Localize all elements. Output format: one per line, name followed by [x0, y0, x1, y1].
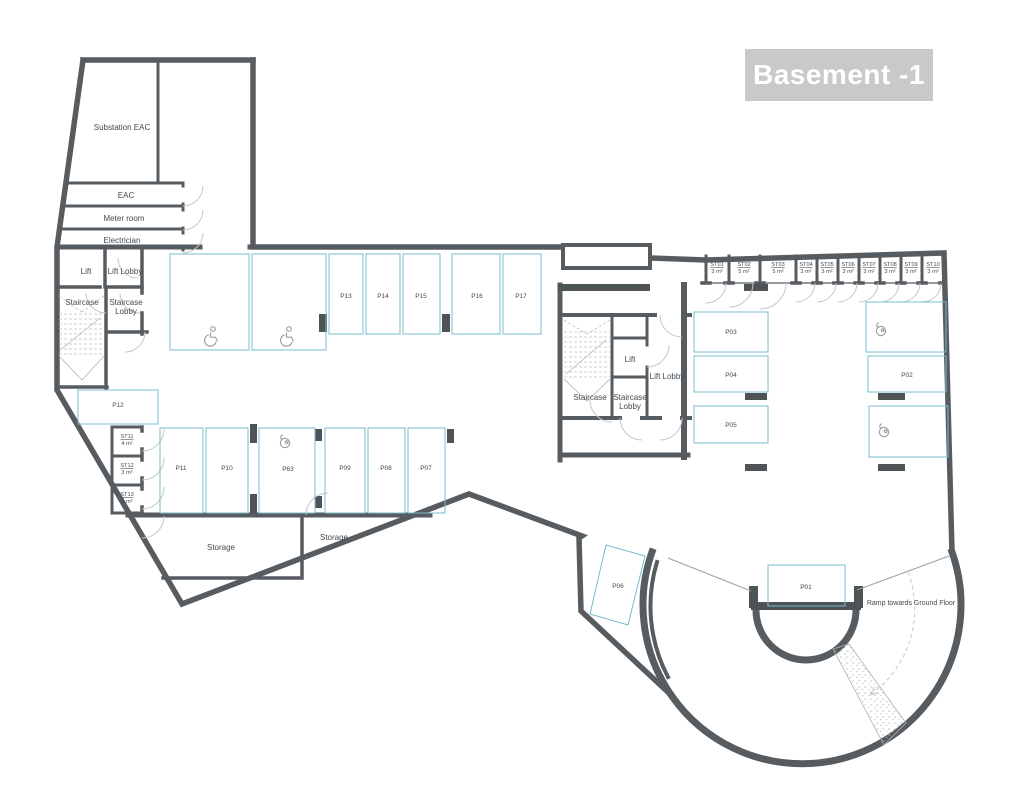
parking-label-p16: P16 — [471, 293, 483, 300]
interior-walls — [57, 60, 944, 660]
door-arc — [880, 283, 899, 302]
parking-spot-accessible-1 — [170, 254, 249, 350]
wheelchair-icon — [205, 327, 218, 346]
svg-text:3 m²: 3 m² — [821, 269, 832, 275]
svg-text:3 m²: 3 m² — [121, 470, 132, 476]
parking-label-p13: P13 — [340, 293, 352, 300]
parking-label-p05: P05 — [725, 422, 737, 429]
staircase-west-treads — [59, 296, 104, 380]
parking-spots — [78, 254, 948, 625]
ramp-hatch — [833, 644, 906, 745]
svg-text:3 m²: 3 m² — [927, 269, 938, 275]
parking-label-p06: P06 — [612, 583, 624, 590]
room-label-meter-room: Meter room — [104, 214, 145, 223]
svg-text:5 m²: 5 m² — [738, 269, 749, 275]
ramp-direction-arc — [870, 572, 915, 695]
door-arc — [142, 516, 164, 538]
room-label-lift-west: Lift — [81, 267, 92, 276]
shaft-opening — [563, 245, 650, 268]
parking-label-p14: P14 — [377, 293, 389, 300]
svg-text:4 m²: 4 m² — [121, 441, 132, 447]
room-label-lift-east: Lift — [625, 355, 636, 364]
room-label-staircase-lobby-west-2: Lobby — [115, 307, 137, 316]
door-arc — [142, 429, 164, 451]
parking-label-p63: P63 — [282, 466, 294, 473]
door-arc — [922, 283, 941, 302]
room-label-storage-west: Storage — [207, 543, 236, 552]
door-arc — [142, 487, 164, 509]
svg-text:3 m²: 3 m² — [800, 269, 811, 275]
svg-text:3 m²: 3 m² — [842, 269, 853, 275]
parking-spot-accessible-2 — [252, 254, 326, 350]
svg-text:ST05: ST05 — [820, 262, 833, 268]
door-arcs — [86, 186, 941, 538]
parking-label-p10: P10 — [221, 465, 233, 472]
parking-label-p04: P04 — [725, 372, 737, 379]
title-badge: Basement -1 — [745, 49, 933, 101]
door-arc — [796, 283, 815, 302]
door-arc — [706, 283, 726, 303]
parking-label-p09: P09 — [339, 465, 351, 472]
door-arc — [838, 283, 857, 302]
door-arc — [660, 315, 682, 337]
door-arc — [901, 283, 920, 302]
door-arc — [183, 233, 203, 253]
parking-label-p12: P12 — [112, 402, 124, 409]
room-label-staircase-lobby-east-1: Staircase — [613, 393, 647, 402]
scooter-icon — [876, 323, 885, 336]
svg-text:ST10: ST10 — [926, 262, 939, 268]
svg-text:4 m²: 4 m² — [121, 499, 132, 505]
parking-label-p01: P01 — [800, 584, 812, 591]
door-arc — [859, 283, 878, 302]
parking-label-p07: P07 — [420, 465, 432, 472]
room-label-staircase-lobby-west-1: Staircase — [109, 298, 143, 307]
svg-text:ST07: ST07 — [862, 262, 875, 268]
door-arc — [620, 418, 642, 440]
floor-title: Basement -1 — [753, 59, 925, 91]
svg-text:ST11: ST11 — [121, 434, 134, 440]
parking-label-p17: P17 — [515, 293, 527, 300]
door-arc — [142, 458, 164, 480]
parking-label-p02: P02 — [901, 372, 913, 379]
svg-text:3 m²: 3 m² — [884, 269, 895, 275]
parking-label-p11: P11 — [175, 465, 186, 472]
svg-text:ST13: ST13 — [120, 492, 133, 498]
door-arc — [647, 345, 669, 367]
room-label-substation: Substation EAC — [94, 123, 151, 132]
svg-text:ST03: ST03 — [771, 262, 784, 268]
door-arc — [660, 418, 682, 440]
labels: Substation EAC EAC Meter room Electricia… — [65, 123, 955, 607]
room-label-staircase-lobby-east-2: Lobby — [619, 402, 641, 411]
wheelchair-icon — [281, 327, 294, 346]
room-label-lift-lobby-west: Lift Lobby — [108, 267, 143, 276]
parking-label-p03: P03 — [725, 329, 737, 336]
svg-text:ST12: ST12 — [120, 463, 133, 469]
scooter-icon — [879, 424, 888, 437]
staircase-east-treads — [564, 320, 610, 401]
floor-plan-page: Substation EAC EAC Meter room Electricia… — [0, 0, 1024, 810]
svg-text:ST06: ST06 — [841, 262, 854, 268]
svg-text:3 m²: 3 m² — [863, 269, 874, 275]
svg-text:ST09: ST09 — [904, 262, 917, 268]
parking-spot-scooter-2 — [869, 406, 948, 457]
parking-label-p08: P08 — [380, 465, 392, 472]
room-label-electrician: Electrician — [104, 236, 141, 245]
room-label-staircase-east: Staircase — [573, 393, 607, 402]
storage-unit-labels: ST01 3 m² ST02 5 m² ST03 5 m² ST04 3 m² … — [120, 262, 939, 505]
door-arc — [183, 186, 203, 206]
svg-text:3 m²: 3 m² — [711, 269, 722, 275]
svg-text:ST08: ST08 — [883, 262, 896, 268]
svg-text:5 m²: 5 m² — [772, 269, 783, 275]
room-label-storage-east: Storage — [320, 533, 349, 542]
room-label-staircase-west: Staircase — [65, 298, 99, 307]
parking-label-p15: P15 — [415, 293, 427, 300]
room-label-lift-lobby-east: Lift Lobby — [650, 372, 685, 381]
ramp-label: Ramp towards Ground Floor — [867, 600, 956, 607]
svg-text:ST04: ST04 — [799, 262, 812, 268]
svg-text:3 m²: 3 m² — [905, 269, 916, 275]
door-arc — [817, 283, 836, 302]
icons — [205, 323, 889, 448]
svg-text:ST01: ST01 — [710, 262, 723, 268]
door-arc — [183, 210, 203, 230]
svg-text:ST02: ST02 — [737, 262, 750, 268]
scooter-icon — [280, 435, 289, 448]
floor-plan: Substation EAC EAC Meter room Electricia… — [0, 0, 1024, 810]
room-label-eac: EAC — [118, 191, 135, 200]
